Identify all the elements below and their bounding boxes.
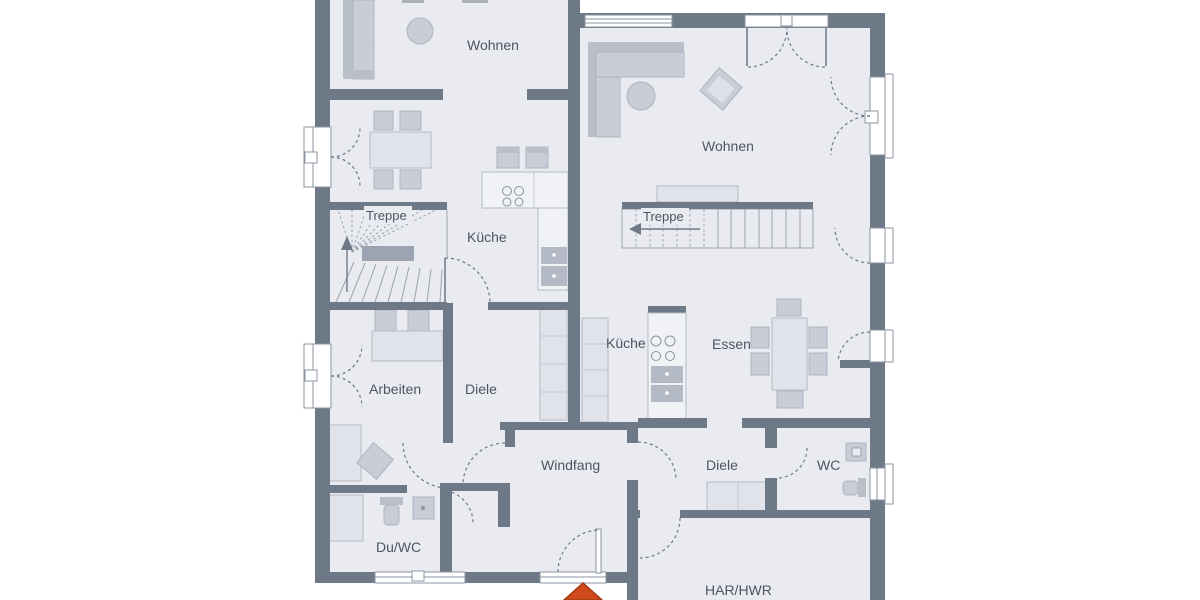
wall-diele-top: [638, 418, 707, 428]
sofa-back: [343, 0, 353, 79]
label-kueche-left: Küche: [467, 229, 507, 245]
window-handle: [305, 152, 317, 163]
toilet-tank: [380, 497, 403, 505]
wall-diele-harhwr: [680, 510, 870, 518]
coffee-table-round: [407, 18, 433, 44]
toilet: [843, 481, 858, 495]
chair: [809, 353, 827, 375]
label-duwc: Du/WC: [376, 539, 421, 555]
wall-windfang-top: [500, 422, 628, 430]
window-frame: [885, 464, 893, 504]
label-treppe-left: Treppe: [366, 208, 407, 223]
window-frame: [885, 228, 893, 263]
toilet: [384, 505, 399, 525]
window-handle: [305, 370, 317, 381]
wall-wohnen-dining: [327, 89, 443, 100]
sofa-back: [588, 42, 684, 52]
wall-arbeiten-duwc: [315, 485, 407, 493]
kitchen-island-edge: [648, 306, 686, 313]
wall-essen-stub: [840, 360, 870, 368]
door: [870, 228, 885, 263]
chair: [809, 327, 827, 348]
desk: [372, 331, 443, 361]
wall-party: [568, 0, 580, 430]
cut-text-fragment: [462, 0, 488, 3]
label-diele-left: Diele: [465, 381, 497, 397]
label-har-hwr: HAR/HWR: [705, 582, 772, 598]
entrance-door-leaf: [596, 529, 601, 573]
label-wc: WC: [817, 457, 840, 473]
dining-table: [772, 318, 807, 390]
chair: [374, 111, 393, 130]
wall-windfang-right: [627, 422, 638, 443]
label-kueche-right: Küche: [606, 335, 646, 351]
window-frame: [885, 330, 893, 362]
wall-diele-wc: [765, 478, 777, 512]
side-table-round: [627, 82, 655, 110]
label-wohnen-right: Wohnen: [702, 138, 754, 154]
toilet-tank: [858, 478, 866, 497]
dining-table: [370, 132, 431, 168]
shower: [325, 495, 363, 541]
wall-wohnen-dining: [527, 89, 568, 100]
label-wohnen-left: Wohnen: [467, 37, 519, 53]
chair: [400, 170, 421, 189]
kitchen-counter: [482, 172, 568, 208]
wall-stairwell-bottom: [328, 302, 447, 310]
wall-windfang-right: [627, 480, 638, 600]
window-handle: [865, 111, 878, 123]
door: [870, 330, 885, 362]
wall-arbeiten-diele: [443, 303, 453, 443]
chair: [374, 170, 393, 189]
wall-kueche-diele: [488, 302, 568, 310]
wall-diele-top: [742, 418, 870, 428]
wall-diele-harhwr: [628, 510, 640, 518]
sofa-armrest: [343, 70, 374, 79]
wall-windfang-left: [498, 491, 510, 527]
lowboard: [657, 186, 738, 202]
stair-left-spine: [362, 246, 414, 261]
label-essen: Essen: [712, 336, 751, 352]
sofa-seat: [353, 0, 374, 79]
wall-duwc-right: [440, 491, 452, 572]
wall-stair-rail: [622, 202, 813, 209]
floor-plan-svg: Wohnen Treppe Küche Arbeiten Diele Du/WC…: [0, 0, 1200, 600]
label-treppe-right: Treppe: [643, 209, 684, 224]
wall-diele-wc: [765, 425, 777, 448]
chair: [408, 310, 429, 331]
corner-sofa: [596, 77, 620, 137]
wall-windfang-left: [440, 483, 510, 491]
label-arbeiten: Arbeiten: [369, 381, 421, 397]
window-frame: [885, 74, 893, 158]
label-windfang: Windfang: [541, 457, 600, 473]
floor-plan: Wohnen Treppe Küche Arbeiten Diele Du/WC…: [0, 0, 1200, 600]
room-windfang-floor: [568, 430, 580, 572]
entrance-arrow: [564, 583, 602, 600]
chair: [777, 391, 803, 408]
corner-sofa: [596, 52, 684, 77]
wall-left-outer: [315, 0, 330, 583]
window-handle: [781, 15, 792, 26]
wall-windfang-stub: [505, 430, 515, 447]
chair: [375, 310, 396, 331]
chair: [751, 353, 769, 375]
window: [585, 15, 672, 27]
window-handle: [412, 571, 424, 581]
cut-text-fragment: [402, 0, 424, 3]
chair: [751, 327, 769, 348]
chair: [400, 111, 421, 130]
label-diele-right: Diele: [706, 457, 738, 473]
chair: [777, 299, 801, 316]
